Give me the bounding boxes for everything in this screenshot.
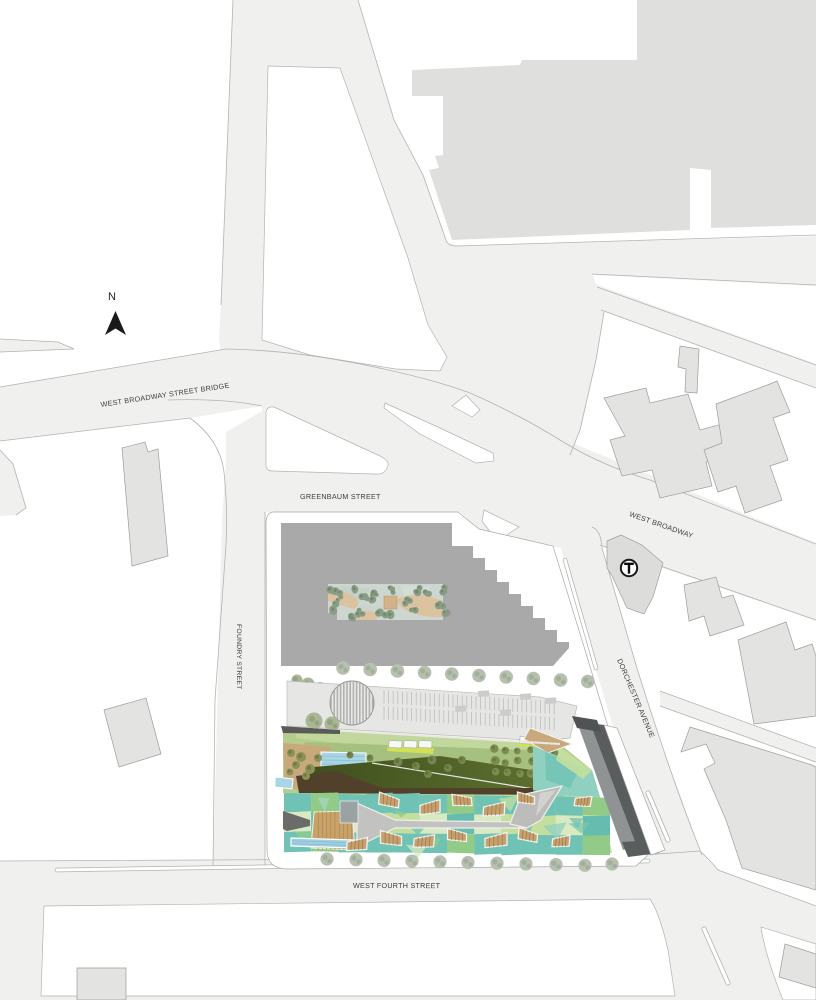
svg-text:FOUNDRY STREET: FOUNDRY STREET: [235, 624, 242, 690]
svg-text:N: N: [108, 291, 116, 303]
svg-text:GREENBAUM STREET: GREENBAUM STREET: [300, 492, 381, 501]
svg-text:WEST FOURTH STREET: WEST FOURTH STREET: [353, 881, 441, 890]
